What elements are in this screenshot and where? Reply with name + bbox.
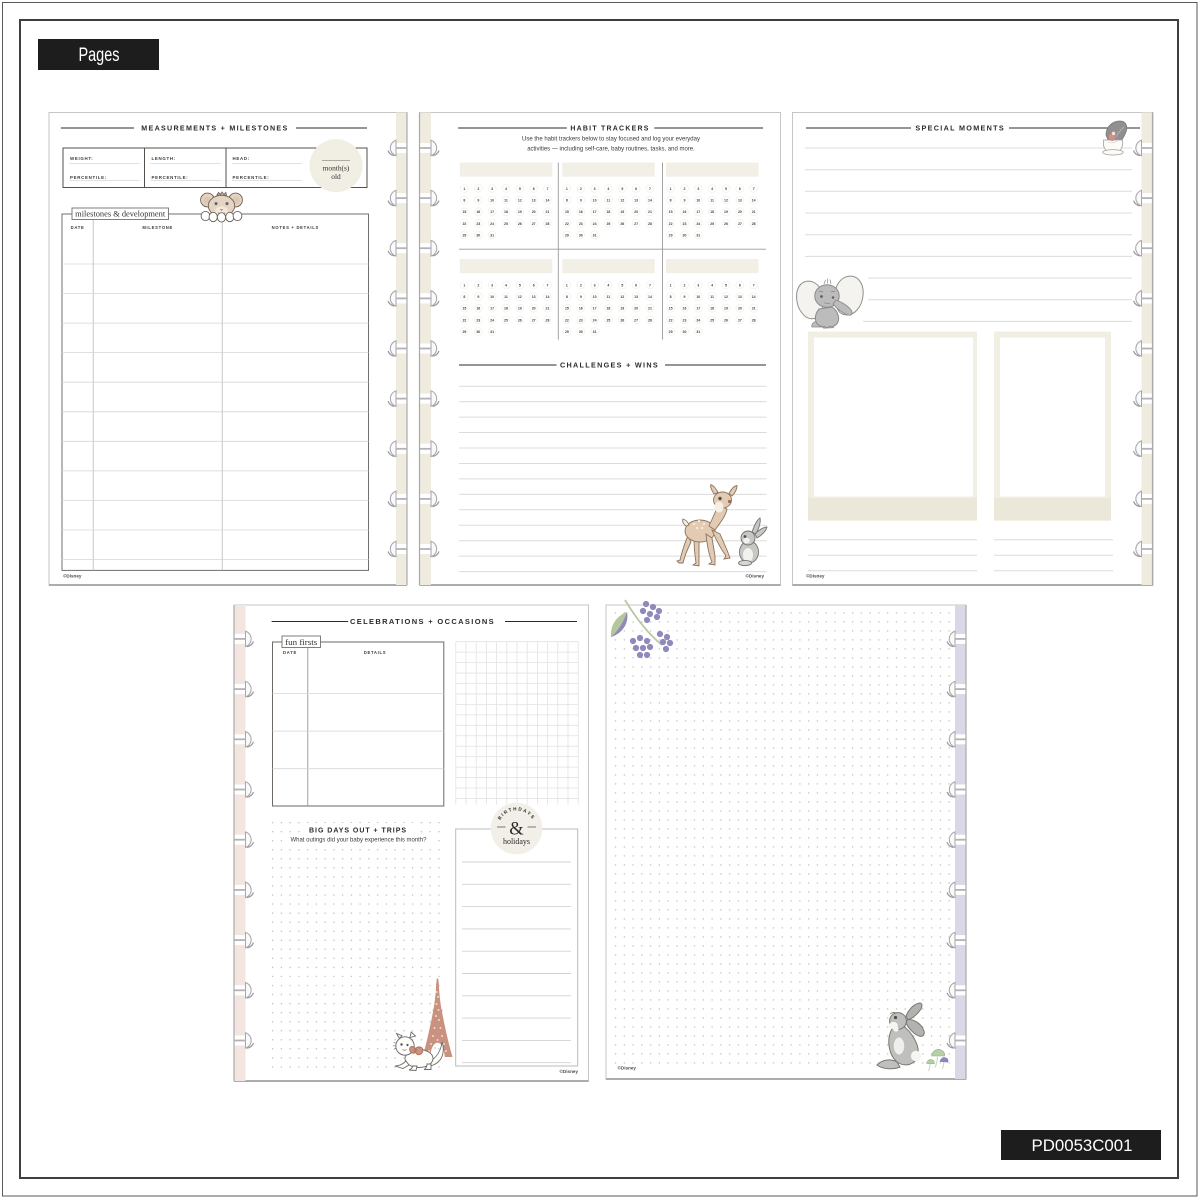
- svg-text:24: 24: [593, 222, 597, 226]
- svg-text:2: 2: [477, 284, 479, 288]
- svg-text:11: 11: [504, 295, 508, 299]
- svg-text:WEIGHT:: WEIGHT:: [70, 156, 93, 161]
- svg-text:6: 6: [739, 187, 741, 191]
- svg-text:10: 10: [593, 295, 597, 299]
- svg-text:26: 26: [518, 222, 522, 226]
- svg-text:28: 28: [546, 318, 550, 322]
- svg-text:5: 5: [519, 284, 521, 288]
- svg-text:5: 5: [725, 187, 727, 191]
- svg-text:1: 1: [463, 284, 465, 288]
- svg-text:13: 13: [634, 295, 638, 299]
- svg-text:8: 8: [670, 295, 672, 299]
- svg-text:27: 27: [634, 318, 638, 322]
- svg-text:©Disney: ©Disney: [63, 573, 82, 579]
- svg-text:PERCENTILE:: PERCENTILE:: [70, 175, 107, 180]
- svg-text:20: 20: [634, 210, 638, 214]
- svg-text:31: 31: [696, 330, 700, 334]
- svg-text:29: 29: [669, 330, 673, 334]
- svg-text:13: 13: [738, 199, 742, 203]
- svg-text:28: 28: [648, 222, 652, 226]
- svg-text:30: 30: [579, 233, 583, 237]
- svg-text:24: 24: [696, 318, 700, 322]
- svg-text:CELEBRATIONS + OCCASIONS: CELEBRATIONS + OCCASIONS: [350, 617, 495, 626]
- svg-text:6: 6: [739, 284, 741, 288]
- svg-text:24: 24: [490, 222, 494, 226]
- svg-text:20: 20: [738, 210, 742, 214]
- svg-text:21: 21: [546, 210, 550, 214]
- svg-text:1: 1: [670, 284, 672, 288]
- svg-text:15: 15: [669, 210, 673, 214]
- svg-text:What outings did your baby exp: What outings did your baby experience th…: [291, 837, 427, 844]
- svg-text:19: 19: [724, 307, 728, 311]
- svg-text:21: 21: [648, 210, 652, 214]
- svg-text:10: 10: [696, 199, 700, 203]
- svg-text:DATE: DATE: [71, 225, 85, 230]
- svg-text:1: 1: [566, 284, 568, 288]
- svg-text:holidays: holidays: [503, 837, 530, 846]
- svg-text:26: 26: [724, 318, 728, 322]
- svg-text:24: 24: [490, 318, 494, 322]
- svg-text:2: 2: [684, 187, 686, 191]
- svg-text:26: 26: [620, 222, 624, 226]
- svg-text:6: 6: [635, 284, 637, 288]
- svg-text:LENGTH:: LENGTH:: [152, 156, 176, 161]
- svg-text:18: 18: [504, 210, 508, 214]
- svg-text:15: 15: [565, 210, 569, 214]
- svg-text:18: 18: [710, 307, 714, 311]
- svg-text:2: 2: [684, 284, 686, 288]
- svg-text:19: 19: [518, 210, 522, 214]
- svg-text:28: 28: [546, 222, 550, 226]
- svg-text:30: 30: [579, 330, 583, 334]
- svg-text:7: 7: [753, 284, 755, 288]
- svg-text:16: 16: [579, 210, 583, 214]
- svg-text:22: 22: [669, 318, 673, 322]
- svg-text:21: 21: [752, 210, 756, 214]
- svg-text:6: 6: [533, 284, 535, 288]
- svg-text:PERCENTILE:: PERCENTILE:: [152, 175, 189, 180]
- svg-text:©Disney: ©Disney: [806, 573, 825, 579]
- svg-text:26: 26: [620, 318, 624, 322]
- svg-text:9: 9: [477, 199, 479, 203]
- svg-text:3: 3: [594, 187, 596, 191]
- svg-text:18: 18: [710, 210, 714, 214]
- svg-text:7: 7: [649, 284, 651, 288]
- svg-text:26: 26: [518, 318, 522, 322]
- svg-text:25: 25: [710, 318, 714, 322]
- svg-text:9: 9: [580, 199, 582, 203]
- svg-text:21: 21: [546, 307, 550, 311]
- svg-text:25: 25: [504, 318, 508, 322]
- svg-text:7: 7: [753, 187, 755, 191]
- svg-text:3: 3: [697, 284, 699, 288]
- svg-text:9: 9: [477, 295, 479, 299]
- svg-text:7: 7: [547, 284, 549, 288]
- svg-text:2: 2: [580, 284, 582, 288]
- svg-text:14: 14: [648, 199, 652, 203]
- svg-text:19: 19: [518, 307, 522, 311]
- svg-text:28: 28: [648, 318, 652, 322]
- svg-text:DATE: DATE: [283, 650, 297, 655]
- svg-text:14: 14: [648, 295, 652, 299]
- svg-text:15: 15: [669, 307, 673, 311]
- svg-text:14: 14: [752, 295, 756, 299]
- svg-text:15: 15: [462, 307, 466, 311]
- svg-text:31: 31: [490, 330, 494, 334]
- svg-text:3: 3: [491, 187, 493, 191]
- svg-text:8: 8: [670, 199, 672, 203]
- svg-text:16: 16: [683, 210, 687, 214]
- svg-text:1: 1: [463, 187, 465, 191]
- svg-text:25: 25: [710, 222, 714, 226]
- svg-text:25: 25: [606, 222, 610, 226]
- svg-text:22: 22: [462, 318, 466, 322]
- svg-text:13: 13: [532, 295, 536, 299]
- svg-text:CHALLENGES + WINS: CHALLENGES + WINS: [560, 361, 659, 370]
- svg-text:4: 4: [711, 187, 713, 191]
- svg-text:11: 11: [710, 295, 714, 299]
- svg-text:NOTES + DETAILS: NOTES + DETAILS: [272, 225, 319, 230]
- svg-text:4: 4: [505, 187, 507, 191]
- svg-text:20: 20: [634, 307, 638, 311]
- svg-text:17: 17: [593, 307, 597, 311]
- svg-text:22: 22: [565, 318, 569, 322]
- svg-text:©Disney: ©Disney: [560, 1068, 579, 1074]
- svg-text:27: 27: [634, 222, 638, 226]
- svg-text:16: 16: [476, 307, 480, 311]
- svg-text:30: 30: [476, 330, 480, 334]
- svg-text:Pages: Pages: [79, 45, 120, 66]
- svg-text:17: 17: [696, 210, 700, 214]
- svg-text:Use the habit trackers below t: Use the habit trackers below to stay foc…: [522, 135, 701, 142]
- svg-text:4: 4: [711, 284, 713, 288]
- svg-text:HEAD:: HEAD:: [233, 156, 250, 161]
- svg-text:17: 17: [696, 307, 700, 311]
- svg-text:3: 3: [491, 284, 493, 288]
- svg-text:3: 3: [594, 284, 596, 288]
- svg-text:5: 5: [725, 284, 727, 288]
- svg-text:25: 25: [606, 318, 610, 322]
- svg-text:22: 22: [565, 222, 569, 226]
- svg-text:27: 27: [532, 222, 536, 226]
- svg-text:31: 31: [490, 233, 494, 237]
- svg-text:5: 5: [519, 187, 521, 191]
- svg-text:12: 12: [724, 199, 728, 203]
- svg-text:19: 19: [620, 307, 624, 311]
- svg-text:15: 15: [462, 210, 466, 214]
- svg-text:17: 17: [490, 210, 494, 214]
- svg-text:30: 30: [683, 330, 687, 334]
- svg-text:19: 19: [724, 210, 728, 214]
- svg-text:23: 23: [476, 318, 480, 322]
- svg-text:12: 12: [620, 295, 624, 299]
- svg-text:18: 18: [504, 307, 508, 311]
- svg-text:activities — including self-ca: activities — including self-care, baby r…: [527, 146, 695, 153]
- svg-text:5: 5: [621, 187, 623, 191]
- svg-text:10: 10: [490, 199, 494, 203]
- svg-text:11: 11: [710, 199, 714, 203]
- svg-text:18: 18: [606, 307, 610, 311]
- svg-text:12: 12: [724, 295, 728, 299]
- svg-text:9: 9: [684, 199, 686, 203]
- svg-text:29: 29: [565, 330, 569, 334]
- svg-text:20: 20: [532, 307, 536, 311]
- svg-text:23: 23: [683, 222, 687, 226]
- svg-text:old: old: [331, 172, 341, 181]
- svg-text:2: 2: [477, 187, 479, 191]
- svg-text:29: 29: [462, 330, 466, 334]
- svg-text:2: 2: [580, 187, 582, 191]
- svg-text:20: 20: [738, 307, 742, 311]
- svg-text:12: 12: [518, 295, 522, 299]
- svg-text:29: 29: [669, 233, 673, 237]
- svg-text:7: 7: [649, 187, 651, 191]
- svg-text:3: 3: [697, 187, 699, 191]
- svg-text:15: 15: [565, 307, 569, 311]
- svg-text:11: 11: [607, 199, 611, 203]
- svg-text:29: 29: [462, 233, 466, 237]
- svg-text:14: 14: [546, 295, 550, 299]
- svg-text:16: 16: [683, 307, 687, 311]
- svg-text:13: 13: [532, 199, 536, 203]
- svg-text:©Disney: ©Disney: [618, 1065, 637, 1071]
- svg-text:milestones & development: milestones & development: [75, 210, 166, 219]
- svg-text:17: 17: [490, 307, 494, 311]
- svg-text:6: 6: [533, 187, 535, 191]
- svg-text:30: 30: [476, 233, 480, 237]
- svg-text:PD0053C001: PD0053C001: [1032, 1137, 1133, 1155]
- svg-text:14: 14: [752, 199, 756, 203]
- svg-text:31: 31: [696, 233, 700, 237]
- svg-text:12: 12: [620, 199, 624, 203]
- svg-text:23: 23: [579, 318, 583, 322]
- svg-text:16: 16: [579, 307, 583, 311]
- svg-text:8: 8: [566, 199, 568, 203]
- svg-text:11: 11: [504, 199, 508, 203]
- svg-text:9: 9: [580, 295, 582, 299]
- svg-text:26: 26: [724, 222, 728, 226]
- svg-text:25: 25: [504, 222, 508, 226]
- svg-text:13: 13: [738, 295, 742, 299]
- svg-text:18: 18: [606, 210, 610, 214]
- svg-text:8: 8: [463, 199, 465, 203]
- svg-text:24: 24: [696, 222, 700, 226]
- svg-text:23: 23: [476, 222, 480, 226]
- svg-text:17: 17: [593, 210, 597, 214]
- svg-text:1: 1: [670, 187, 672, 191]
- svg-text:22: 22: [669, 222, 673, 226]
- svg-text:28: 28: [752, 222, 756, 226]
- svg-text:4: 4: [607, 187, 609, 191]
- svg-text:DETAILS: DETAILS: [364, 650, 387, 655]
- svg-text:8: 8: [463, 295, 465, 299]
- svg-text:10: 10: [490, 295, 494, 299]
- svg-text:23: 23: [683, 318, 687, 322]
- svg-text:9: 9: [684, 295, 686, 299]
- svg-text:10: 10: [696, 295, 700, 299]
- svg-text:29: 29: [565, 233, 569, 237]
- svg-text:7: 7: [547, 187, 549, 191]
- svg-text:10: 10: [593, 199, 597, 203]
- svg-text:4: 4: [607, 284, 609, 288]
- svg-text:12: 12: [518, 199, 522, 203]
- svg-text:24: 24: [593, 318, 597, 322]
- svg-text:13: 13: [634, 199, 638, 203]
- svg-text:27: 27: [738, 318, 742, 322]
- svg-text:27: 27: [532, 318, 536, 322]
- svg-text:21: 21: [752, 307, 756, 311]
- svg-text:14: 14: [546, 199, 550, 203]
- svg-text:16: 16: [476, 210, 480, 214]
- svg-text:BIG DAYS OUT + TRIPS: BIG DAYS OUT + TRIPS: [309, 826, 407, 835]
- svg-text:31: 31: [593, 233, 597, 237]
- svg-text:21: 21: [648, 307, 652, 311]
- svg-text:MEASUREMENTS + MILESTONES: MEASUREMENTS + MILESTONES: [141, 124, 288, 133]
- svg-text:1: 1: [566, 187, 568, 191]
- svg-text:HABIT TRACKERS: HABIT TRACKERS: [570, 124, 649, 133]
- svg-text:23: 23: [579, 222, 583, 226]
- svg-text:SPECIAL MOMENTS: SPECIAL MOMENTS: [915, 124, 1005, 133]
- svg-text:22: 22: [462, 222, 466, 226]
- svg-text:©Disney: ©Disney: [746, 573, 765, 579]
- svg-text:5: 5: [621, 284, 623, 288]
- svg-text:28: 28: [752, 318, 756, 322]
- svg-text:4: 4: [505, 284, 507, 288]
- svg-text:19: 19: [620, 210, 624, 214]
- svg-text:27: 27: [738, 222, 742, 226]
- svg-text:MILESTONE: MILESTONE: [142, 225, 173, 230]
- svg-text:30: 30: [683, 233, 687, 237]
- svg-text:PERCENTILE:: PERCENTILE:: [233, 175, 270, 180]
- svg-text:20: 20: [532, 210, 536, 214]
- svg-text:6: 6: [635, 187, 637, 191]
- svg-text:31: 31: [593, 330, 597, 334]
- svg-text:8: 8: [566, 295, 568, 299]
- svg-text:11: 11: [607, 295, 611, 299]
- svg-text:fun firsts: fun firsts: [285, 638, 317, 647]
